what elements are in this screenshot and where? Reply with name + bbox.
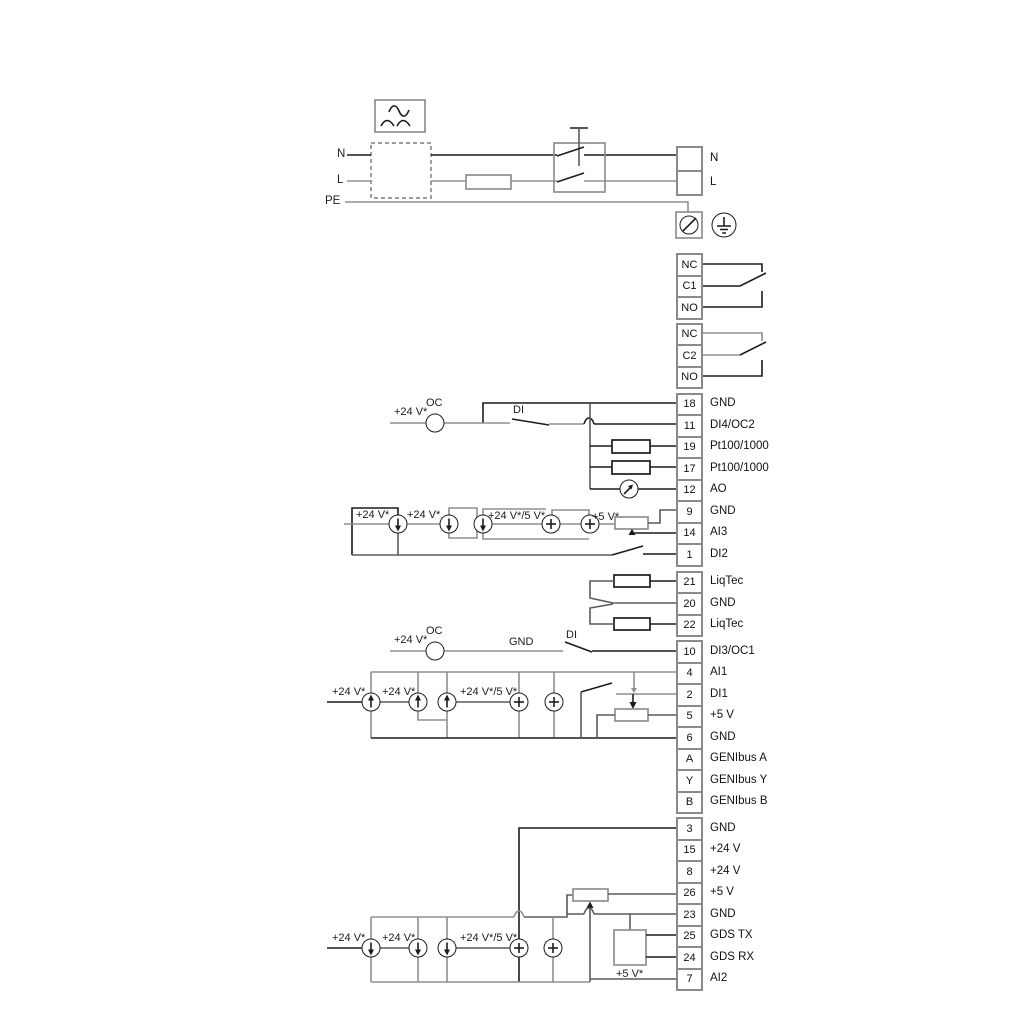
gnd3-wire (519, 828, 676, 982)
terminal-cell-relay2-NC: NC (676, 323, 703, 347)
current-source-down-icon (440, 515, 458, 533)
terminal-cell-io1-14: 14 (676, 522, 703, 546)
annotation-di-2: DI (513, 405, 524, 416)
io1-upper-wiring (390, 403, 676, 498)
terminal-label-2: DI1 (710, 688, 728, 700)
terminal-label-19: Pt100/1000 (710, 440, 769, 452)
terminal-label-B: GENIbus B (710, 795, 768, 807)
voltage-source-icon (545, 693, 563, 711)
terminal-cell-io3-8: 8 (676, 860, 703, 884)
annotation-24-v-3: +24 V* (356, 510, 389, 521)
terminal-label-Y: GENIbus Y (710, 774, 767, 786)
terminal-label-14: AI3 (710, 526, 727, 538)
terminal-label-7: AI2 (710, 972, 727, 984)
annotation-24-v-11: +24 V* (332, 687, 365, 698)
relay1-blade (740, 273, 766, 286)
terminal-cell-io1-1: 1 (676, 543, 703, 567)
terminal-cell-io2-A: A (676, 748, 703, 772)
terminal-label-25: GDS TX (710, 929, 753, 941)
relay1-wiring (703, 264, 766, 307)
annotation-5-v-6: +5 V* (592, 512, 619, 523)
di1-switch-blade (581, 683, 612, 692)
terminal-label-18: GND (710, 397, 736, 409)
annotation-5-v-17: +5 V* (616, 969, 643, 980)
annotation-24-v-7: +24 V* (394, 635, 427, 646)
voltage-source-icon (544, 939, 562, 957)
annotation-gnd-9: GND (509, 637, 533, 648)
annotation-24-v-12: +24 V* (382, 687, 415, 698)
terminal-cell-power-L (676, 170, 703, 196)
terminal-cell-io1-18: 18 (676, 393, 703, 417)
liqtec-wiring (590, 575, 676, 630)
terminal-cell-io1-19: 19 (676, 436, 703, 460)
terminal-cell-liqtec-20: 20 (676, 592, 703, 616)
terminal-cell-io3-3: 3 (676, 817, 703, 841)
current-source-down-icon (389, 515, 407, 533)
terminal-cell-relay1-NO: NO (676, 296, 703, 320)
terminal-label-10: DI3/OC1 (710, 645, 755, 657)
di3-switch-blade (565, 642, 592, 652)
terminal-label-A: GENIbus A (710, 752, 767, 764)
potentiometer-icon (615, 709, 648, 721)
terminal-cell-io2-10: 10 (676, 640, 703, 664)
signal-arrow (631, 688, 637, 693)
wire-pe (345, 202, 688, 212)
wiring-diagram-page: NLNCC1NONCC2NO18GND11DI4/OC219Pt100/1000… (0, 0, 1024, 1024)
terminal-label-3: GND (710, 822, 736, 834)
terminal-cell-io3-25: 25 (676, 925, 703, 949)
annotation-24-v-4: +24 V* (407, 510, 440, 521)
terminal-label-9: GND (710, 505, 736, 517)
terminal-label-26: +5 V (710, 886, 734, 898)
filter-symbol-box (375, 100, 425, 132)
wire-hop (584, 418, 594, 424)
annotation-24-v-14: +24 V* (332, 933, 365, 944)
annotation-24-v-15: +24 V* (382, 933, 415, 944)
terminal-label-N: N (710, 152, 718, 164)
terminal-cell-io3-7: 7 (676, 968, 703, 992)
terminal-cell-liqtec-21: 21 (676, 571, 703, 595)
terminal-label-17: Pt100/1000 (710, 462, 769, 474)
potentiometer-icon (615, 517, 648, 529)
terminal-cell-io3-23: 23 (676, 903, 703, 927)
terminal-label-24: GDS RX (710, 951, 754, 963)
terminal-cell-io3-24: 24 (676, 946, 703, 970)
terminal-cell-io2-4: 4 (676, 662, 703, 686)
current-source-down-icon (438, 939, 456, 957)
terminal-cell-io2-2: 2 (676, 683, 703, 707)
wiper-arrow (587, 902, 594, 909)
terminal-label-12: AO (710, 483, 727, 495)
terminal-label-21: LiqTec (710, 575, 743, 587)
annotation-24-v-5-v-13: +24 V*/5 V* (460, 687, 517, 698)
sensor-housing-b (552, 510, 589, 515)
terminal-cell-io2-B: B (676, 791, 703, 815)
di4-switch-blade (512, 419, 549, 425)
annotation-24-v-5-v-5: +24 V*/5 V* (488, 511, 545, 522)
pt100-resistor-icon (612, 440, 650, 453)
switch-blade-n (557, 147, 584, 156)
liqtec-sensor-icon (614, 618, 650, 630)
terminal-cell-liqtec-22: 22 (676, 614, 703, 638)
liqtec-sensor-icon (614, 575, 650, 587)
terminal-cell-power-N (676, 146, 703, 172)
terminal-label-23: GND (710, 908, 736, 920)
di2-switch-blade (612, 546, 643, 555)
terminal-label-6: GND (710, 731, 736, 743)
terminal-cell-io3-15: 15 (676, 839, 703, 863)
sensor-group-2 (327, 672, 676, 738)
terminal-label-20: GND (710, 597, 736, 609)
terminal-cell-io2-Y: Y (676, 769, 703, 793)
relay2-wiring (703, 333, 766, 376)
gds-module-box (614, 930, 646, 965)
terminal-cell-io1-17: 17 (676, 457, 703, 481)
terminal-label-15: +24 V (710, 843, 740, 855)
pt100-resistor-icon (612, 461, 650, 474)
wire-gnd18 (483, 403, 676, 423)
mains-label-pe: PE (325, 196, 340, 207)
terminal-cell-relay1-C1: C1 (676, 275, 703, 299)
mains-label-n: N (337, 149, 345, 160)
wiper-arrow (630, 702, 637, 709)
annotation-oc-8: OC (426, 626, 443, 637)
terminal-cell-io2-5: 5 (676, 705, 703, 729)
terminal-cell-relay2-NO: NO (676, 366, 703, 390)
terminal-cell-io1-11: 11 (676, 414, 703, 438)
terminal-cell-relay2-C2: C2 (676, 344, 703, 368)
supply-unit-dashed-box (371, 143, 431, 198)
terminal-label-11: DI4/OC2 (710, 419, 755, 431)
annotation-di-10: DI (566, 630, 577, 641)
annotation-24-v-5-v-16: +24 V*/5 V* (460, 933, 517, 944)
switch-blade-l (557, 173, 584, 182)
terminal-label-4: AI1 (710, 666, 727, 678)
terminal-label-5: +5 V (710, 709, 734, 721)
terminal-label-1: DI2 (710, 548, 728, 560)
terminal-cell-relay1-NC: NC (676, 253, 703, 277)
terminal-label-L: L (710, 176, 716, 188)
annotation-oc-1: OC (426, 398, 443, 409)
terminal-label-8: +24 V (710, 865, 740, 877)
relay2-blade (740, 342, 766, 355)
terminal-label-22: LiqTec (710, 618, 743, 630)
potentiometer-icon (573, 889, 608, 901)
terminal-cell-io1-9: 9 (676, 500, 703, 524)
open-collector-icon (426, 414, 444, 432)
current-source-up-icon (438, 693, 456, 711)
terminal-cell-io2-6: 6 (676, 726, 703, 750)
annotation-24-v-0: +24 V* (394, 407, 427, 418)
open-collector-icon (426, 642, 444, 660)
sensor-group-3 (327, 828, 676, 982)
terminal-cell-io3-26: 26 (676, 882, 703, 906)
wire-hop (584, 908, 594, 914)
terminal-cell-io1-12: 12 (676, 479, 703, 503)
mains-label-l: L (337, 175, 343, 186)
fuse-icon (466, 175, 511, 189)
